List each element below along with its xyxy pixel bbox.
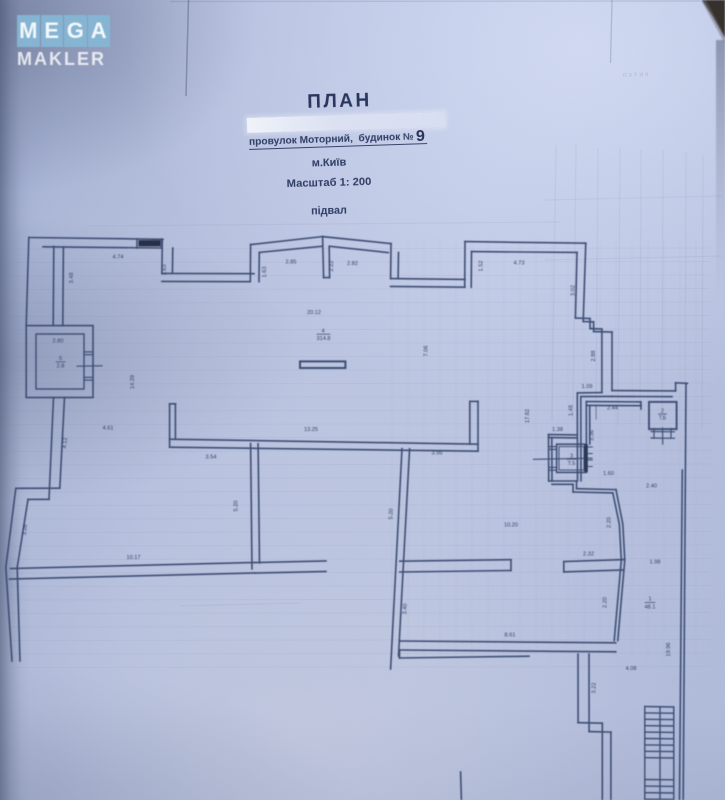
svg-text:4.73: 4.73: [514, 261, 525, 267]
svg-text:4.12: 4.12: [62, 437, 69, 448]
svg-text:20.12: 20.12: [307, 310, 321, 316]
svg-text:1.09: 1.09: [582, 384, 593, 390]
svg-text:8.61: 8.61: [505, 633, 516, 639]
svg-text:3.40: 3.40: [402, 603, 408, 614]
svg-text:10.17: 10.17: [127, 555, 141, 561]
svg-text:2.82: 2.82: [347, 261, 358, 267]
svg-text:4.08: 4.08: [626, 666, 637, 672]
svg-text:5: 5: [59, 356, 62, 362]
svg-text:13.25: 13.25: [304, 427, 318, 433]
svg-text:3.22: 3.22: [592, 683, 598, 694]
svg-text:4: 4: [321, 329, 324, 335]
svg-text:2.88: 2.88: [591, 351, 597, 362]
svg-text:1.48: 1.48: [569, 405, 575, 416]
svg-text:3.48: 3.48: [69, 273, 75, 284]
svg-text:2: 2: [661, 409, 664, 415]
svg-text:5.20: 5.20: [388, 508, 394, 519]
svg-text:1.38: 1.38: [552, 427, 563, 433]
svg-text:2.44: 2.44: [607, 406, 618, 412]
svg-text:5.20: 5.20: [234, 501, 240, 512]
svg-text:314.8: 314.8: [317, 336, 331, 342]
svg-text:7.06: 7.06: [424, 346, 430, 357]
svg-text:48.1: 48.1: [645, 605, 656, 611]
svg-text:19.96: 19.96: [666, 643, 672, 657]
svg-text:2.20: 2.20: [603, 597, 609, 608]
svg-text:Т.5: Т.5: [568, 461, 575, 467]
svg-text:2.8: 2.8: [57, 364, 65, 370]
svg-text:2.40: 2.40: [646, 484, 657, 490]
svg-text:1: 1: [648, 597, 651, 603]
svg-text:2.20: 2.20: [607, 517, 613, 528]
svg-text:3.36: 3.36: [590, 430, 596, 441]
svg-text:Т.Б: Т.Б: [659, 416, 667, 422]
svg-text:1.52: 1.52: [479, 261, 485, 272]
svg-text:1.98: 1.98: [650, 560, 661, 566]
svg-text:1.63: 1.63: [162, 265, 168, 276]
svg-text:2.32: 2.32: [583, 552, 594, 558]
svg-text:2.85: 2.85: [286, 260, 297, 266]
svg-text:3.26: 3.26: [22, 524, 29, 535]
svg-text:14.39: 14.39: [130, 375, 136, 389]
svg-text:2.80: 2.80: [53, 339, 64, 345]
svg-text:3.02: 3.02: [571, 285, 577, 296]
svg-text:1.60: 1.60: [603, 471, 614, 477]
svg-text:2.22: 2.22: [329, 261, 335, 272]
svg-text:4.74: 4.74: [113, 255, 124, 261]
svg-text:3.95: 3.95: [432, 451, 443, 457]
svg-text:4.61: 4.61: [103, 426, 114, 432]
svg-text:1.63: 1.63: [262, 267, 268, 278]
svg-text:3.54: 3.54: [206, 455, 217, 461]
svg-text:10.20: 10.20: [504, 523, 518, 529]
svg-text:3: 3: [570, 454, 573, 460]
svg-text:17.82: 17.82: [525, 409, 531, 423]
